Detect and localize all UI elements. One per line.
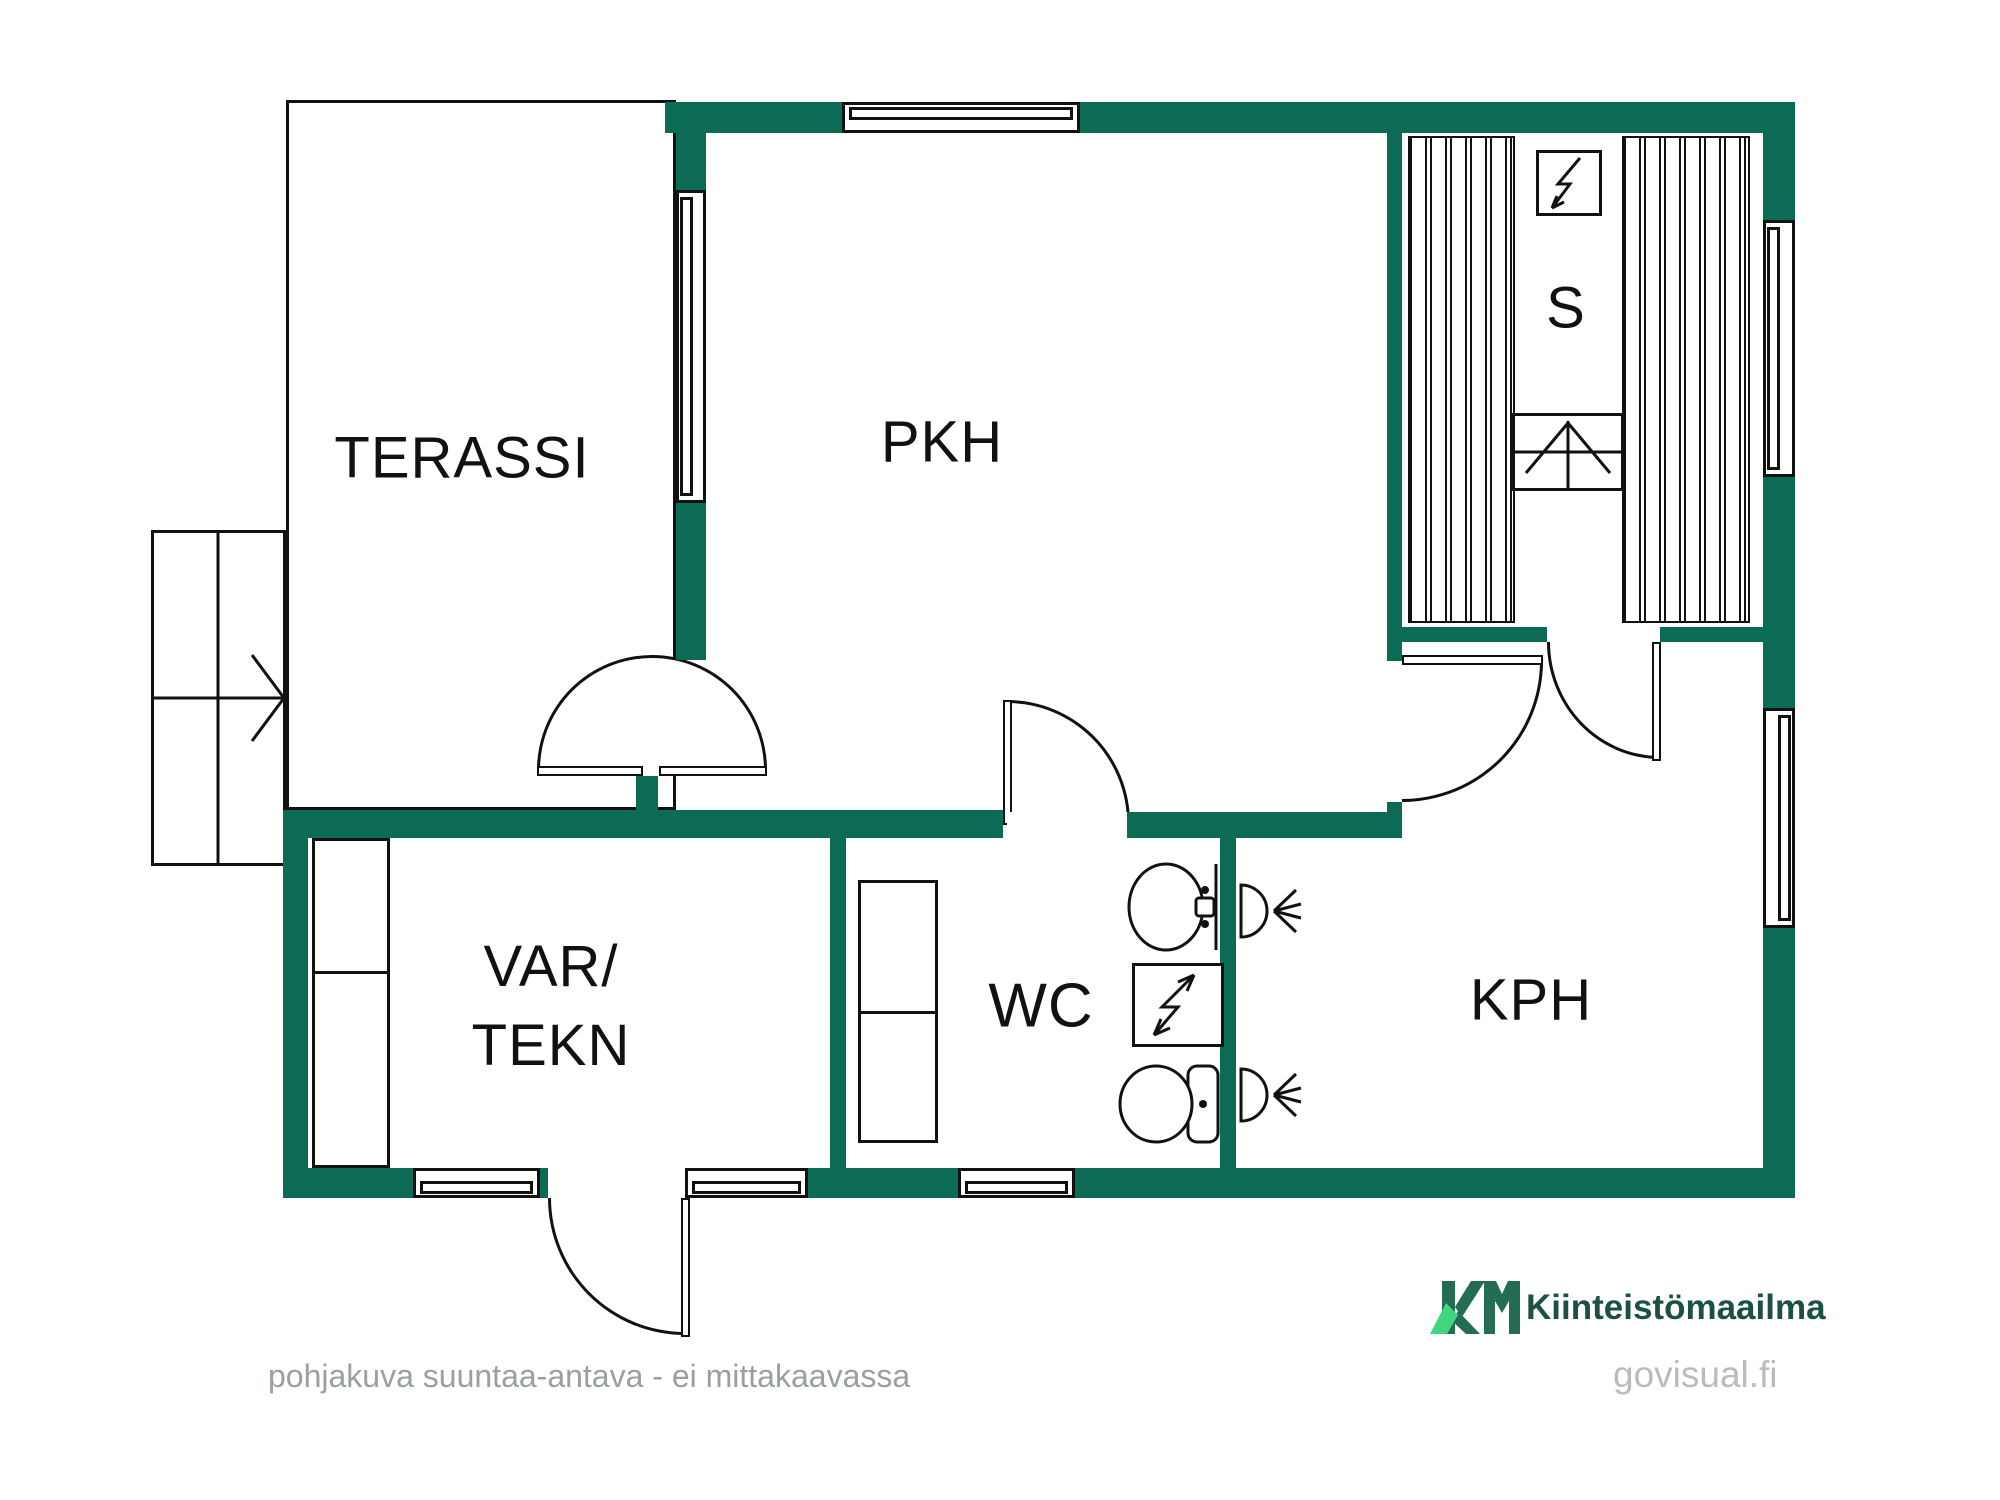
wc-door-arc xyxy=(1007,700,1130,823)
kph-door-arc xyxy=(1402,661,1543,802)
wall-top xyxy=(665,102,1795,133)
window-wc-south xyxy=(958,1168,1075,1198)
room-label-wc: WC xyxy=(988,971,1093,1042)
sink xyxy=(1124,860,1224,954)
wall-wc-left xyxy=(830,838,846,1168)
wall-sauna-west xyxy=(1387,133,1402,661)
disclaimer-text: pohjakuva suuntaa-antava - ei mittakaava… xyxy=(268,1358,910,1395)
window-var-south-1 xyxy=(413,1168,540,1198)
var-door-opening xyxy=(548,1168,685,1198)
wall-var-left xyxy=(283,810,308,1168)
wc-door-leaf xyxy=(1003,700,1012,825)
window-pkh-north xyxy=(842,102,1080,133)
sauna-bench-right xyxy=(1622,136,1750,623)
room-label-sauna: S xyxy=(1546,275,1586,342)
wall-mid-left xyxy=(283,810,1003,838)
window-terrace-wall xyxy=(676,190,706,503)
toilet xyxy=(1116,1060,1222,1148)
shower-icon xyxy=(1241,885,1267,937)
var-cabinet xyxy=(312,838,390,1168)
sauna-step xyxy=(1512,413,1624,491)
brand-website: govisual.fi xyxy=(1613,1354,1778,1396)
wall-sauna-south-right xyxy=(1660,627,1763,642)
kph-door-leaf xyxy=(1402,655,1543,665)
wall-west-lower xyxy=(676,503,706,660)
brand-company-name: Kiinteistömaailma xyxy=(1526,1288,1826,1328)
room-label-pkh: PKH xyxy=(881,409,1003,476)
var-door-leaf xyxy=(681,1198,690,1337)
wall-door-stub xyxy=(636,776,658,810)
electric-panel xyxy=(1132,963,1224,1047)
shower-icon xyxy=(1241,1069,1267,1121)
window-var-south-2 xyxy=(685,1168,808,1198)
wall-kph-stub xyxy=(1387,802,1402,838)
room-label-var-tekn: VAR/ TEKN xyxy=(472,928,631,1086)
room-label-kph: KPH xyxy=(1470,967,1592,1034)
km-logo-icon xyxy=(1428,1281,1520,1334)
sauna-stove xyxy=(1536,150,1602,216)
wall-west-upper xyxy=(676,133,706,190)
room-label-terassi: TERASSI xyxy=(334,425,589,492)
wall-mid-right xyxy=(1127,812,1402,838)
wall-sauna-south-left xyxy=(1402,627,1547,642)
window-sauna-east xyxy=(1763,220,1795,477)
sauna-door-leaf xyxy=(1652,642,1661,761)
var-door-arc xyxy=(548,1198,685,1335)
wc-door-opening xyxy=(1007,812,1127,838)
double-door-leaf-right xyxy=(659,766,767,776)
wc-cabinet xyxy=(858,880,938,1143)
stairs xyxy=(151,530,286,866)
window-kph-east xyxy=(1763,708,1795,928)
double-door-leaf-left xyxy=(537,766,643,776)
floor-plan: TERASSI PKH S VAR/ TEKN WC KPH pohjakuva… xyxy=(0,0,2000,1500)
shower-lower xyxy=(1238,1066,1304,1124)
sauna-door-arc xyxy=(1547,642,1660,759)
shower-upper xyxy=(1238,882,1304,940)
sauna-bench-left xyxy=(1408,136,1515,623)
